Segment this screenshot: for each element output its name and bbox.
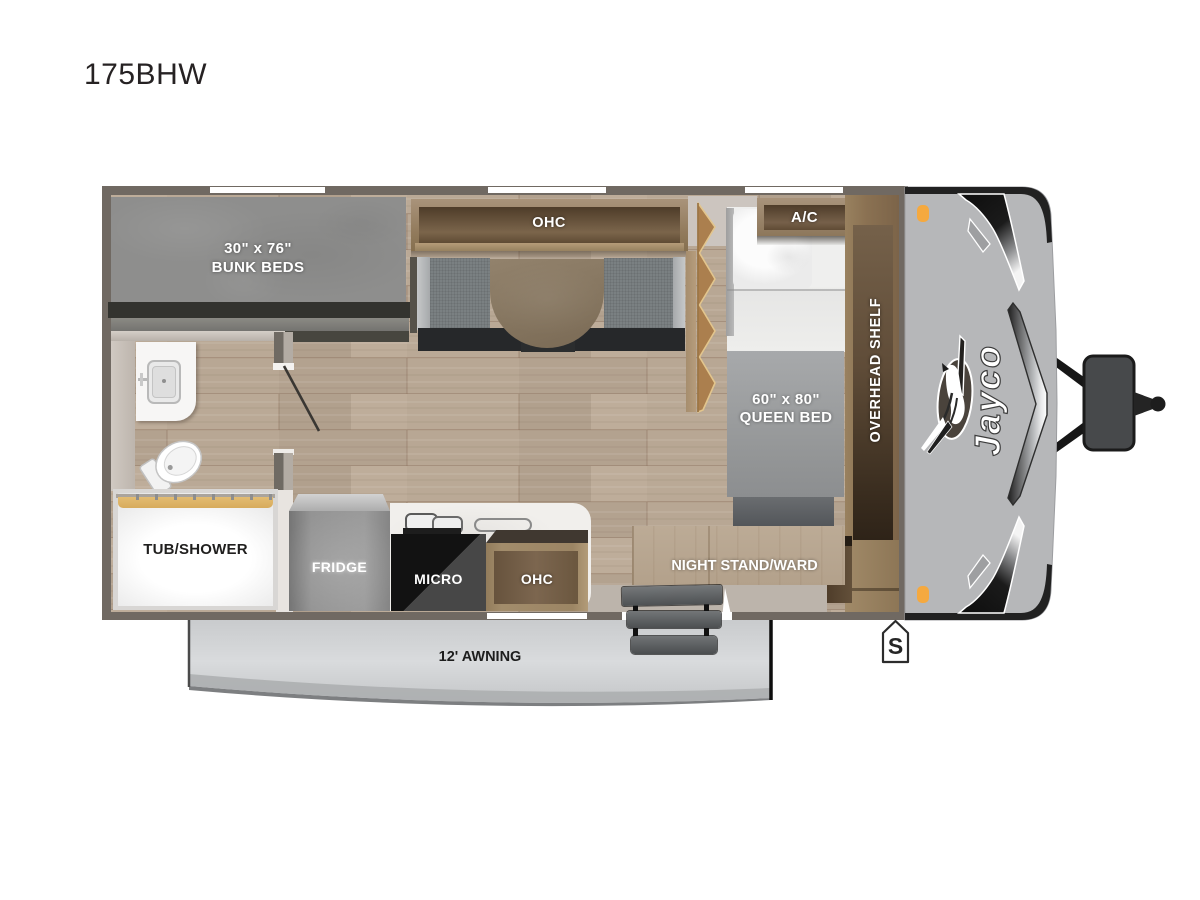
svg-text:Jayco: Jayco [967,344,1008,456]
svg-text:S: S [888,633,903,659]
